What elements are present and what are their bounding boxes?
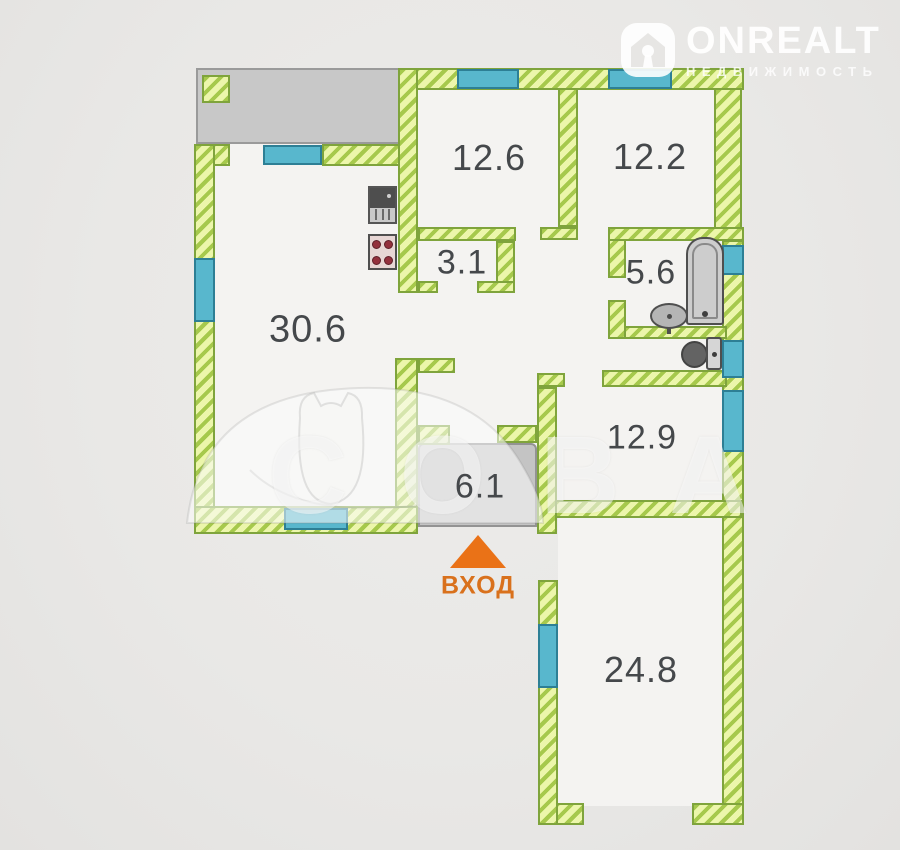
room-area-label-bathroom: 5.6 — [626, 254, 676, 293]
brand-subtitle: НЕДВИЖИМОСТЬ — [686, 64, 881, 79]
room-area-label-living-room: 30.6 — [269, 309, 347, 352]
room-area-label-big-room: 24.8 — [604, 649, 678, 691]
house-icon — [620, 22, 676, 78]
onrealt-logo: ONREALT НЕДВИЖИМОСТЬ — [620, 22, 881, 79]
brand-name: ONREALT — [686, 22, 881, 60]
room-area-label-corridor: 3.1 — [437, 244, 487, 283]
entrance-arrow-icon — [450, 535, 506, 568]
room-area-label-bedroom-2: 12.2 — [613, 136, 687, 178]
room-labels-layer: 30.612.612.23.15.612.96.124.8 — [0, 0, 900, 850]
room-area-label-bedroom-1: 12.6 — [452, 137, 526, 179]
room-area-label-hallway: 12.9 — [607, 419, 677, 458]
room-area-label-entry-hall: 6.1 — [455, 468, 505, 507]
entrance-label: ВХОД — [441, 572, 515, 601]
floor-plan-screenshot: СОВА 30.612.612.23.15.612.96.124.8 ВХОД — [0, 0, 900, 850]
